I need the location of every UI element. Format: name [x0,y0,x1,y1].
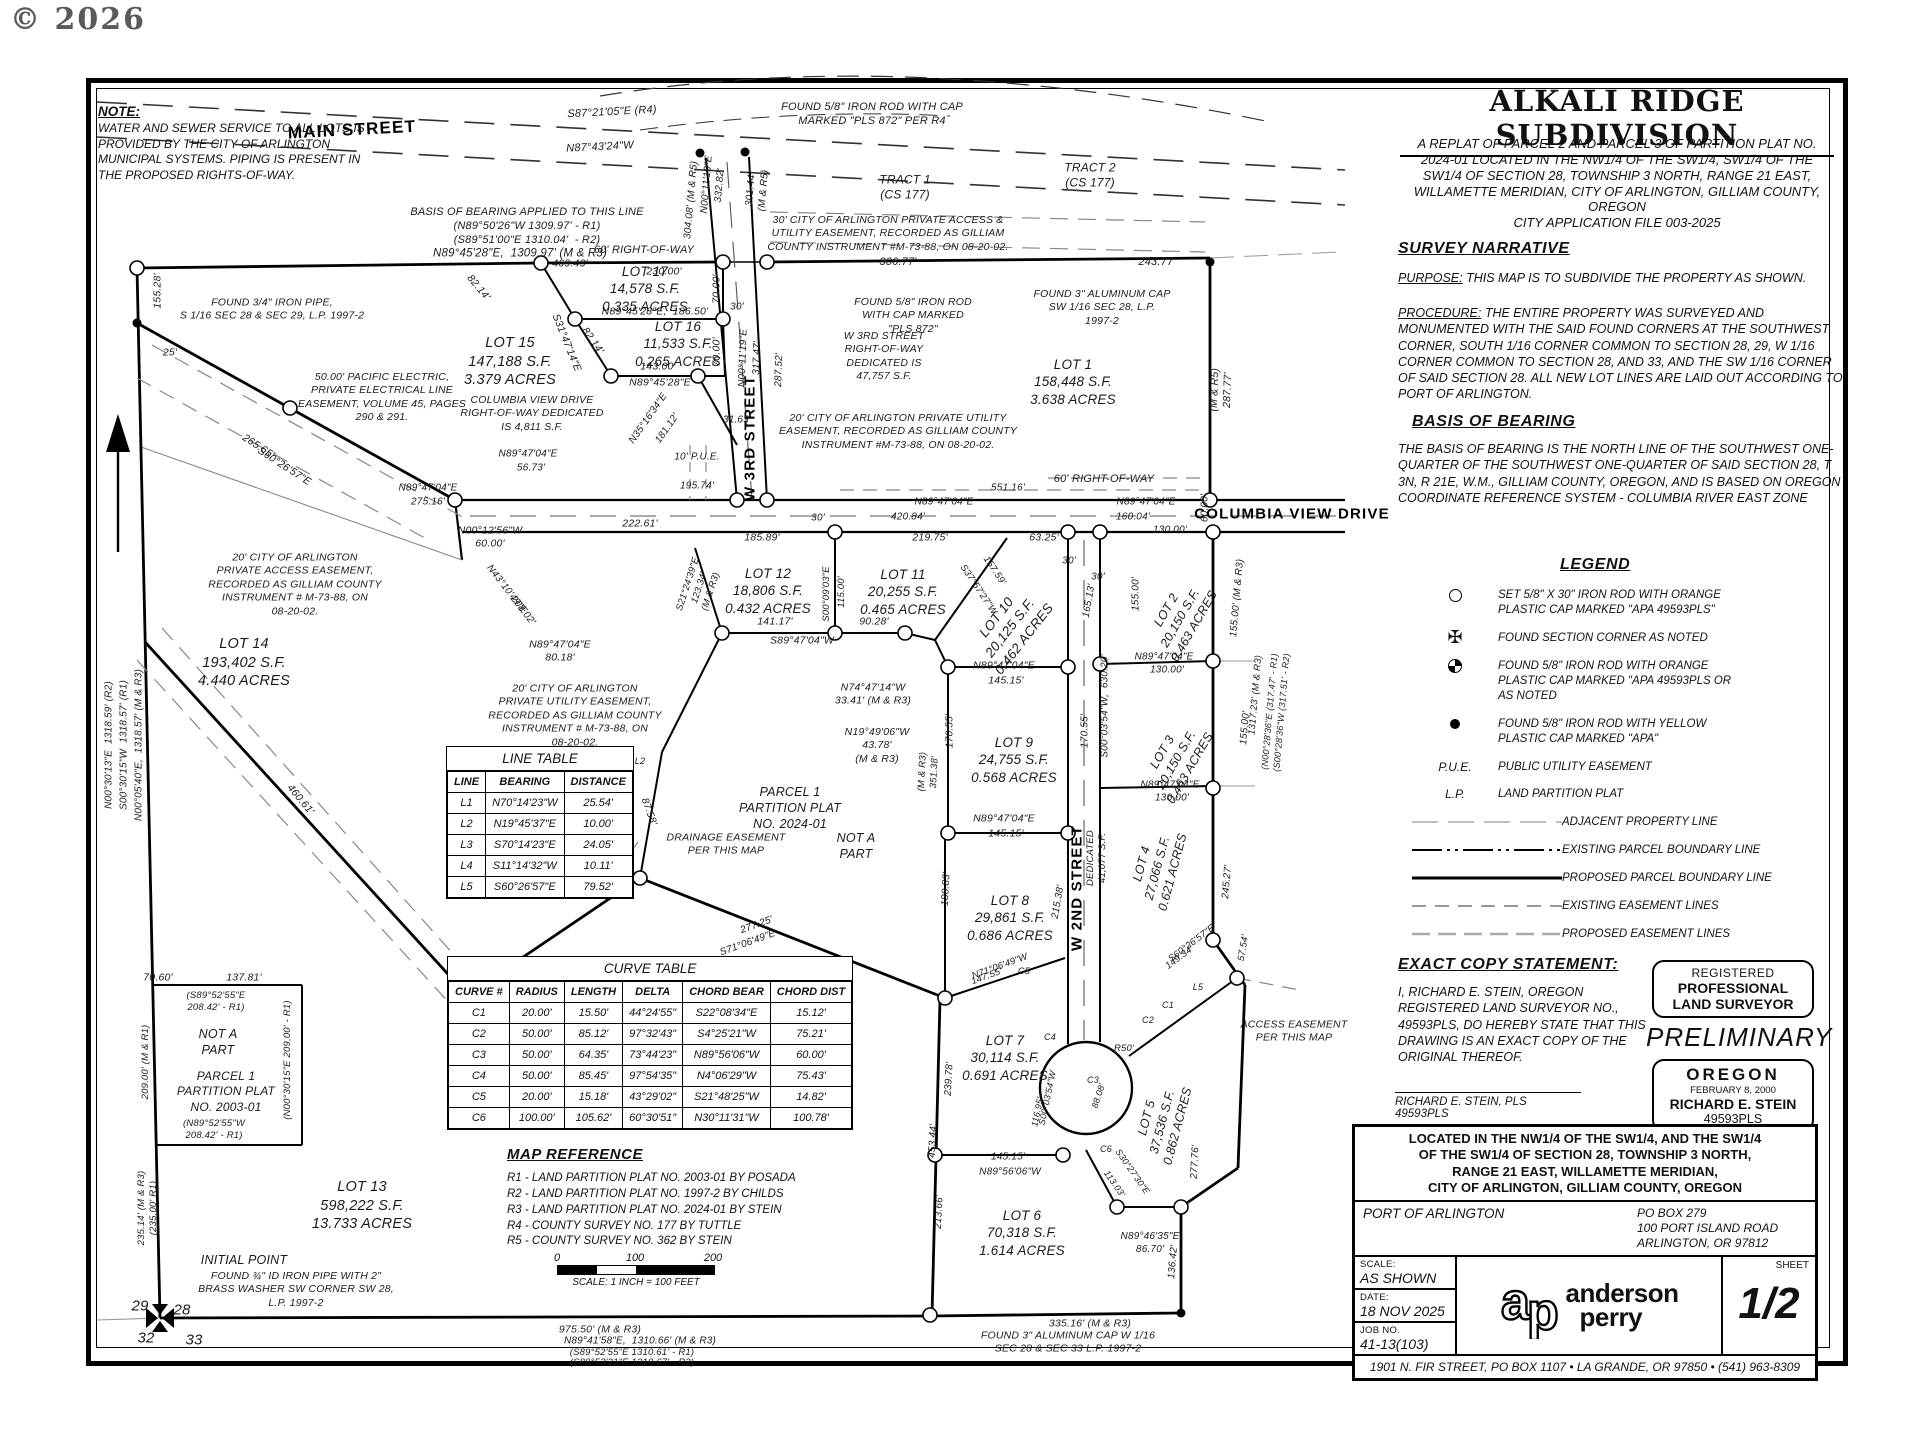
legend-item: PROPOSED EASEMENT LINES [1412,927,1842,942]
plat-annotation: LOT 9 24,755 S.F. 0.568 ACRES [971,734,1057,786]
plat-annotation: NOT A PART [199,1026,238,1058]
plat-annotation: PARCEL 1 PARTITION PLAT NO. 2003-01 [177,1069,275,1115]
stamp-land-surveyor: LAND SURVEYOR [1656,996,1810,1012]
table-cell: L3 [448,835,486,856]
basis-of-bearing-text: THE BASIS OF BEARING IS THE NORTH LINE O… [1398,441,1846,506]
plat-annotation: 170.55' [1080,714,1093,748]
note-heading: NOTE: [98,104,428,119]
table-cell: 50.00' [509,1066,564,1087]
purpose-label: PURPOSE: [1398,271,1463,285]
plat-annotation: 130.00' [1155,793,1189,806]
plat-annotation: TRACT 1 (CS 177) [879,173,930,204]
table-row: C520.00'15.18'43°29'02"S21°48'25"W14.82' [449,1087,852,1108]
table-cell: C1 [449,1003,510,1024]
map-reference-item: R5 - COUNTY SURVEY NO. 362 BY STEIN [507,1234,796,1250]
job-label: JOB NO. [1360,1325,1450,1336]
plat-annotation: 60' RIGHT-OF-WAY [1054,472,1154,486]
plat-annotation: 25' [163,346,177,359]
plat-annotation: TRACT 2 (CS 177) [1064,161,1115,192]
plat-annotation: (M & R3) 351.38' [916,752,942,793]
subtitle-line: 2024-01 LOCATED IN THE NW1/4 OF THE SW1/… [1398,152,1836,168]
table-cell: 44°24'55" [623,1003,683,1024]
basis-of-bearing-heading: BASIS OF BEARING [1412,413,1575,431]
plat-annotation: (N00°30'15"E 209.00' - R1) [282,1000,294,1120]
plat-annotation: 277.76' [1189,1145,1204,1180]
plat-annotation: 145.15' [991,1152,1025,1165]
table-cell: 25.54' [564,793,632,814]
table-cell: CHORD BEAR [683,982,771,1003]
line-proposed-easement-icon [1412,927,1562,941]
plat-annotation: 145.15' [988,827,1024,840]
line-table: LINE TABLE LINEBEARINGDISTANCEL1N70°14'2… [446,746,634,899]
circle-open-icon [1412,588,1498,602]
scale-bar-graphic [557,1265,715,1275]
plat-annotation: 30' [1091,572,1105,585]
legend-label: FOUND SECTION CORNER AS NOTED [1498,631,1842,646]
plat-annotation: S00°30'15"W 1318.57' (R1) [119,680,132,810]
line-proposed-parcel-icon [1412,871,1562,885]
table-cell: 15.12' [770,1003,851,1024]
section-corner-icon: ✠ [1412,631,1498,645]
firm-address-footer: 1901 N. FIR STREET, PO BOX 1107 • LA GRA… [1355,1356,1815,1378]
plat-annotation: DEDICATED 41,077 S.F. [1085,830,1109,886]
plat-annotation: C6 [1100,1144,1112,1156]
table-cell: 97°32'43" [623,1024,683,1045]
plat-annotation: LOT 13 598,222 S.F. 13.733 ACRES [312,1178,412,1234]
curve-table-title: CURVE TABLE [448,957,852,981]
plat-annotation: DRAINAGE EASEMENT PER THIS MAP [667,832,786,859]
street-label: COLUMBIA VIEW DRIVE [1194,504,1390,523]
table-row: C450.00'85.45'97°54'35"N4°06'29"W75.43' [449,1066,852,1087]
table-row: L1N70°14'23"W25.54' [448,793,633,814]
table-cell: LENGTH [564,982,622,1003]
legend-heading: LEGEND [1560,556,1630,574]
table-cell: S4°25'21"W [683,1024,771,1045]
stamp-state: OREGON [1656,1065,1810,1085]
scale-value: AS SHOWN [1360,1270,1450,1286]
key-icon: L.P. [1412,787,1498,801]
plat-annotation: 141.17' [757,615,793,628]
stamp-oregon-box: OREGON FEBRUARY 8, 2000 RICHARD E. STEIN… [1652,1059,1814,1132]
scale-cell: SCALE: AS SHOWN [1355,1257,1455,1290]
line-table-title: LINE TABLE [447,747,633,771]
plat-annotation: N89°56'06"W [979,1167,1041,1180]
plat-annotation: N74°47'14"W 33.41' (M & R3) [835,682,911,709]
table-cell: C4 [449,1066,510,1087]
plat-annotation: INITIAL POINT [201,1252,287,1268]
plat-annotation: 239.78' [943,1062,958,1097]
legend-item: FOUND 5/8" IRON ROD WITH YELLOW PLASTIC … [1412,717,1842,747]
plat-annotation: R50' [1114,1043,1134,1055]
table-cell: 79.52' [564,877,632,898]
plat-annotation: N89°47'04"E [1135,652,1194,665]
sheet-subtitle: A REPLAT OF PARCEL 2 AND PARCEL 3 OF PAR… [1398,136,1836,231]
table-cell: 20.00' [509,1003,564,1024]
table-cell: L5 [448,877,486,898]
plat-annotation: LOT 12 18,806 S.F. 0.432 ACRES [725,565,811,617]
plat-annotation: 301.44' (M & R5) [743,168,772,212]
plat-annotation: 137.81' [226,971,262,984]
plat-annotation: 213.66' [933,1195,948,1230]
address-line: PO BOX 279 [1637,1206,1807,1221]
subtitle-line: CITY APPLICATION FILE 003-2025 [1398,215,1836,231]
table-cell: 105.62' [564,1108,622,1129]
plat-annotation: 70.00' [710,337,723,366]
plat-annotation: S00°03'54"W, 630.20' [1100,654,1113,758]
plat-annotation: 420.84' [891,512,925,525]
sheet-number-cell: SHEET 1/2 [1721,1257,1815,1354]
plat-annotation: N00°12'56"W 60.00' [458,525,523,552]
subtitle-line: WILLAMETTE MERIDIAN, CITY OF ARLINGTON, … [1398,184,1836,216]
legend-item: PROPOSED PARCEL BOUNDARY LINE [1412,871,1842,886]
plat-annotation: LOT 14 193,402 S.F. 4.440 ACRES [198,635,290,691]
table-cell: L1 [448,793,486,814]
plat-annotation: 222.61' [622,517,658,530]
location-line: OF THE SW1/4 OF SECTION 28, TOWNSHIP 3 N… [1357,1147,1813,1163]
table-cell: 50.00' [509,1024,564,1045]
legend-label: PUBLIC UTILITY EASEMENT [1498,760,1842,775]
plat-annotation: FOUND 3" ALUMINUM CAP SW 1/16 SEC 28, L.… [1033,288,1170,328]
sheet-number: 1/2 [1723,1279,1815,1329]
map-reference-items: R1 - LAND PARTITION PLAT NO. 2003-01 BY … [507,1171,796,1250]
table-cell: L2 [448,814,486,835]
table-cell: S60°26'57"E [486,877,564,898]
address-line: 100 PORT ISLAND ROAD [1637,1221,1807,1236]
exact-copy-text: I, RICHARD E. STEIN, OREGON REGISTERED L… [1398,984,1668,1065]
plat-annotation: 30' [1062,556,1076,569]
plat-annotation: N89°47'04"E [399,483,458,496]
table-cell: N89°56'06"W [683,1045,771,1066]
plat-annotation: N00°11'19"E [737,329,752,388]
plat-annotation: C5 [1018,966,1030,978]
title-block-location: LOCATED IN THE NW1/4 OF THE SW1/4, AND T… [1355,1127,1815,1202]
plat-annotation: LOT 11 20,255 S.F. 0.465 ACRES [860,566,946,618]
plat-annotation: (S89°52'55"E 208.42' - R1) [187,990,246,1014]
scale-tick: 0 [554,1252,560,1264]
exact-copy-heading: EXACT COPY STATEMENT: [1398,956,1618,974]
plat-annotation: COLUMBIA VIEW DRIVE RIGHT-OF-WAY DEDICAT… [460,394,603,434]
plat-annotation: 180.83' [940,872,955,907]
line-existing-easement-icon [1412,899,1562,913]
table-cell: S22°08'34"E [683,1003,771,1024]
map-reference: MAP REFERENCE R1 - LAND PARTITION PLAT N… [507,1146,796,1250]
legend-item: ✠FOUND SECTION CORNER AS NOTED [1412,631,1842,646]
plat-annotation: 235.14' (M & R3) (235.00' R1) [136,1171,160,1246]
table-cell: 73°44'23" [623,1045,683,1066]
client-address: PO BOX 279 100 PORT ISLAND ROAD ARLINGTO… [1637,1206,1807,1251]
plat-annotation: 20' CITY OF ARLINGTON PRIVATE UTILITY EA… [779,412,1017,452]
plat-annotation: L5 [1193,982,1203,994]
plat-annotation: L2 [635,756,645,768]
plat-annotation: 145.15' [988,674,1024,687]
client-name: PORT OF ARLINGTON [1363,1206,1637,1251]
stamp-registered: REGISTERED [1656,966,1810,980]
procedure-label: PROCEDURE: [1398,306,1481,320]
stamp-registered-box: REGISTERED PROFESSIONAL LAND SURVEYOR [1652,960,1814,1018]
plat-annotation: 30' [730,302,744,315]
legend-label: FOUND 5/8" IRON ROD WITH YELLOW PLASTIC … [1498,717,1842,747]
plat-annotation: 115.00' [836,576,848,608]
location-line: CITY OF ARLINGTON, GILLIAM COUNTY, OREGO… [1357,1180,1813,1196]
plat-annotation: LOT 15 147,188 S.F. 3.379 ACRES [464,334,556,390]
table-cell: 14.82' [770,1087,851,1108]
table-cell: 10.11' [564,856,632,877]
table-cell: 75.43' [770,1066,851,1087]
plat-annotation: N89°47'04"E [915,497,974,510]
table-row: C120.00'15.50'44°24'55"S22°08'34"E15.12' [449,1003,852,1024]
ap-logo-mark: a p [1499,1273,1563,1339]
table-cell: C2 [449,1024,510,1045]
plat-annotation: 306.77' [879,255,916,269]
table-cell: 75.21' [770,1024,851,1045]
map-reference-item: R2 - LAND PARTITION PLAT NO. 1997-2 BY C… [507,1187,796,1203]
scale-label: SCALE: [1360,1259,1450,1270]
legend-item: SET 5/8" X 30" IRON ROD WITH ORANGE PLAS… [1412,588,1842,618]
job-value: 41-13(103) [1360,1336,1450,1352]
plat-annotation: 275.16' [411,497,445,510]
plat-annotation: 453.44' [927,1124,942,1159]
table-cell: 60°30'51" [623,1108,683,1129]
plat-annotation: 160.04' [1116,512,1150,525]
plat-annotation: N00°11'19"E 332.82' [699,155,730,215]
table-cell: 60.00' [770,1045,851,1066]
plat-annotation: LOT 8 29,861 S.F. 0.686 ACRES [967,892,1053,944]
plat-annotation: 170.55' [945,714,958,748]
legend-label: PROPOSED EASEMENT LINES [1562,927,1842,942]
plat-annotation: 30' [811,513,825,526]
plat-annotation: NOT A PART [837,830,876,862]
sheet-label: SHEET [1723,1260,1815,1271]
plat-annotation: 70.60' [143,971,172,984]
plat-annotation: N89°47'04"E [973,812,1035,825]
job-cell: JOB NO. 41-13(103) [1355,1323,1455,1354]
plat-annotation: 243.77' [1138,255,1175,269]
plat-annotation: (M & R5) 287.77' [1208,368,1236,413]
legend-label: PROPOSED PARCEL BOUNDARY LINE [1562,871,1842,886]
table-cell: DELTA [623,982,683,1003]
table-cell: 64.35' [564,1045,622,1066]
plat-annotation: 219.75' [912,531,948,544]
plat-annotation: C2 [1142,1015,1154,1027]
plat-annotation: 30' CITY OF ARLINGTON PRIVATE ACCESS & U… [767,214,1008,254]
table-cell: 85.45' [564,1066,622,1087]
plat-annotation: LOT 7 30,114 S.F. 0.691 ACRES [962,1032,1048,1084]
line-existing-parcel-icon [1412,843,1562,857]
table-cell: S11°14'32"W [486,856,564,877]
plat-annotation: N00°05'40"E, 1318.57' (M & R3) [134,669,147,821]
survey-narrative-procedure: PROCEDURE: THE ENTIRE PROPERTY WAS SURVE… [1398,305,1846,403]
plat-annotation: N89°47'04"E [973,659,1035,672]
plat-annotation: LOT 1 158,448 S.F. 3.638 ACRES [1030,356,1116,408]
plat-annotation: 56.73' [517,463,545,476]
table-cell: C6 [449,1108,510,1129]
plat-annotation: N89°45'28"E [629,376,691,389]
plat-annotation: C4 [1044,1032,1056,1044]
plat-annotation: 90.28' [859,615,888,628]
plat-annotation: 32 [137,1328,154,1347]
date-cell: DATE: 18 NOV 2025 [1355,1290,1455,1323]
plat-annotation: N89°45'28"E, 186.50' [602,305,709,318]
plat-annotation: N89°47'04"E [1141,780,1200,793]
legend-item: FOUND 5/8" IRON ROD WITH ORANGE PLASTIC … [1412,659,1842,704]
table-cell: LINE [448,772,486,793]
circle-filled-icon [1412,717,1498,731]
table-cell: N4°06'29"W [683,1066,771,1087]
plat-annotation: FOUND 5/8" IRON ROD WITH CAP MARKED "PLS… [781,100,963,128]
table-cell: L4 [448,856,486,877]
plat-annotation: 20' CITY OF ARLINGTON PRIVATE UTILITY EA… [488,682,661,749]
plat-annotation: 31.63' [723,415,751,428]
scale-bar-ticks: 0 100 200 [548,1252,778,1265]
ap-logo-words: anderson perry [1565,1282,1678,1330]
legend-item: ADJACENT PROPERTY LINE [1412,815,1842,830]
date-label: DATE: [1360,1292,1450,1303]
table-row: C250.00'85.12'97°32'43"S4°25'21"W75.21' [449,1024,852,1045]
plat-annotation: 63.25' [1029,531,1058,544]
table-row: C350.00'64.35'73°44'23"N89°56'06"W60.00' [449,1045,852,1066]
legend-label: SET 5/8" X 30" IRON ROD WITH ORANGE PLAS… [1498,588,1842,618]
table-cell: CHORD DIST [770,982,851,1003]
table-cell: N19°45'37"E [486,814,564,835]
plat-annotation: 143.00' [640,360,676,373]
street-label: W 3RD STREET [740,375,759,501]
plat-annotation: 10' P.U.E. [674,452,719,465]
plat-annotation: 551.16' [991,483,1025,496]
plat-annotation: ACCESS EASEMENT PER THIS MAP [1241,1019,1348,1046]
plat-annotation: 155.00' [1131,577,1144,611]
table-cell: CURVE # [449,982,510,1003]
table-row: L5S60°26'57"E79.52' [448,877,633,898]
plat-annotation: 50.00' PACIFIC ELECTRIC, PRIVATE ELECTRI… [298,371,466,425]
title-block: LOCATED IN THE NW1/4 OF THE SW1/4, AND T… [1352,1124,1818,1381]
plat-annotation: 29 [131,1296,148,1315]
legend-label: FOUND 5/8" IRON ROD WITH ORANGE PLASTIC … [1498,659,1842,704]
table-cell: C3 [449,1045,510,1066]
location-line: RANGE 21 EAST, WILLAMETTE MERIDIAN, [1357,1164,1813,1180]
map-reference-item: R3 - LAND PARTITION PLAT NO. 2024-01 BY … [507,1203,796,1219]
map-reference-item: R4 - COUNTY SURVEY NO. 177 BY TUTTLE [507,1219,796,1235]
scale-tick: 100 [626,1252,644,1264]
surveyor-signature: RICHARD E. STEIN, PLS 49593PLS [1395,1092,1581,1120]
plat-annotation: 317.47' [751,341,765,375]
table-cell: 100.00' [509,1108,564,1129]
plat-annotation: 28 [173,1300,190,1319]
curve-table: CURVE TABLE CURVE #RADIUSLENGTHDELTACHOR… [447,956,853,1130]
plat-annotation: N89°47'04"E [1117,497,1176,510]
note-text: WATER AND SEWER SERVICE TO ALL LOTS IS P… [98,121,428,183]
plat-annotation: W 3RD STREET RIGHT-OF-WAY DEDICATED IS 4… [844,330,925,384]
plat-annotation: S00°09'03"E [821,566,833,622]
stamp-professional: PROFESSIONAL [1656,980,1810,996]
plat-annotation: 209.00' (M & R1) [140,1025,152,1100]
plat-annotation: PARCEL 1 PARTITION PLAT NO. 2024-01 [739,784,841,832]
date-value: 18 NOV 2025 [1360,1303,1450,1319]
stamp-date: FEBRUARY 8, 2000 [1656,1085,1810,1096]
legend-item: EXISTING PARCEL BOUNDARY LINE [1412,843,1842,858]
title-block-meta: SCALE: AS SHOWN DATE: 18 NOV 2025 JOB NO… [1355,1257,1457,1354]
plat-annotation: C1 [1162,1000,1174,1012]
procedure-text: THE ENTIRE PROPERTY WAS SURVEYED AND MON… [1398,306,1843,401]
table-cell: DISTANCE [564,772,632,793]
plat-annotation: 70.00' [710,274,723,303]
map-reference-heading: MAP REFERENCE [507,1146,796,1163]
scale-bar-caption: SCALE: 1 INCH = 100 FEET [548,1277,724,1288]
table-cell: BEARING [486,772,564,793]
table-cell: 97°54'35" [623,1066,683,1087]
street-label: W 2ND STREET [1067,825,1086,951]
legend-label: ADJACENT PROPERTY LINE [1562,815,1842,830]
legend-label: EXISTING PARCEL BOUNDARY LINE [1562,843,1842,858]
legend-label: LAND PARTITION PLAT [1498,787,1842,802]
surveyor-stamp: REGISTERED PROFESSIONAL LAND SURVEYOR PR… [1652,960,1814,1151]
table-row: C6100.00'105.62'60°30'51"N30°11'31"W100.… [449,1108,852,1129]
legend-item: EXISTING EASEMENT LINES [1412,899,1842,914]
plat-annotation: 130.00' [1153,525,1187,538]
plat-annotation: FOUND ¾" ID IRON PIPE WITH 2" BRASS WASH… [198,1270,394,1310]
plat-annotation: 20' CITY OF ARLINGTON PRIVATE ACCESS EAS… [208,551,381,618]
plat-annotation: 60.00' [1200,494,1213,522]
table-cell: N70°14'23"W [486,793,564,814]
plat-annotation: 185.89' [744,531,780,544]
table-cell: N30°11'31"W [683,1108,771,1129]
table-cell: 85.12' [564,1024,622,1045]
plat-annotation: 469.43' [552,257,588,270]
location-line: LOCATED IN THE NW1/4 OF THE SW1/4, AND T… [1357,1131,1813,1147]
purpose-text: THIS MAP IS TO SUBDIVIDE THE PROPERTY AS… [1463,271,1807,285]
plat-annotation: N19°49'06"W 43.78' (M & R3) [845,726,910,766]
table-cell: 15.18' [564,1087,622,1108]
plat-annotation: S89°47'04"W [770,634,834,647]
plat-annotation: N00°30'13"E 1318.59' (R2) [104,681,117,809]
table-row: L4S11°14'32"W10.11' [448,856,633,877]
legend-label: EXISTING EASEMENT LINES [1562,899,1842,914]
stamp-preliminary: PRELIMINARY [1646,1022,1814,1053]
table-cell: 50.00' [509,1045,564,1066]
plat-annotation: 287.52' [773,353,787,387]
table-cell: 100.78' [770,1108,851,1129]
table-row: L2N19°45'37"E10.00' [448,814,633,835]
table-cell: 24.05' [564,835,632,856]
plat-annotation: FOUND 3/4" IRON PIPE, S 1/16 SEC 28 & SE… [180,297,364,324]
subtitle-line: A REPLAT OF PARCEL 2 AND PARCEL 3 OF PAR… [1398,136,1836,152]
plat-annotation: 155.28' [151,273,164,309]
anderson-perry-logo: a p anderson perry [1457,1257,1721,1354]
note-block: NOTE: WATER AND SEWER SERVICE TO ALL LOT… [98,104,428,183]
table-cell: 10.00' [564,814,632,835]
legend-items: SET 5/8" X 30" IRON ROD WITH ORANGE PLAS… [1412,588,1842,955]
table-cell: RADIUS [509,982,564,1003]
table-cell: 20.00' [509,1087,564,1108]
title-block-middle: SCALE: AS SHOWN DATE: 18 NOV 2025 JOB NO… [1355,1257,1815,1356]
scale-tick: 200 [704,1252,722,1264]
plat-annotation: BASIS OF BEARING APPLIED TO THIS LINE (N… [410,205,643,247]
line-adjacent-icon [1412,815,1562,829]
map-reference-item: R1 - LAND PARTITION PLAT NO. 2003-01 BY … [507,1171,796,1187]
plat-annotation: N89°47'04"E 80.18' [529,639,591,666]
plat-sheet: © 2026 [0,0,1920,1440]
circle-quartered-icon [1412,659,1498,673]
plat-annotation: 33 [185,1330,202,1349]
plat-annotation: LOT 6 70,318 S.F. 1.614 ACRES [979,1207,1065,1259]
plat-annotation: N89°47'04"E [499,449,558,462]
svg-text:p: p [1527,1283,1559,1339]
subtitle-line: SW1/4 OF SECTION 28, TOWNSHIP 3 NORTH, R… [1398,168,1836,184]
plat-annotation: 230.00' [646,265,682,278]
key-icon: P.U.E. [1412,760,1498,774]
address-line: ARLINGTON, OR 97812 [1637,1236,1807,1251]
survey-narrative-heading: SURVEY NARRATIVE [1398,240,1570,258]
plat-annotation: 60' RIGHT-OF-WAY [594,243,694,257]
